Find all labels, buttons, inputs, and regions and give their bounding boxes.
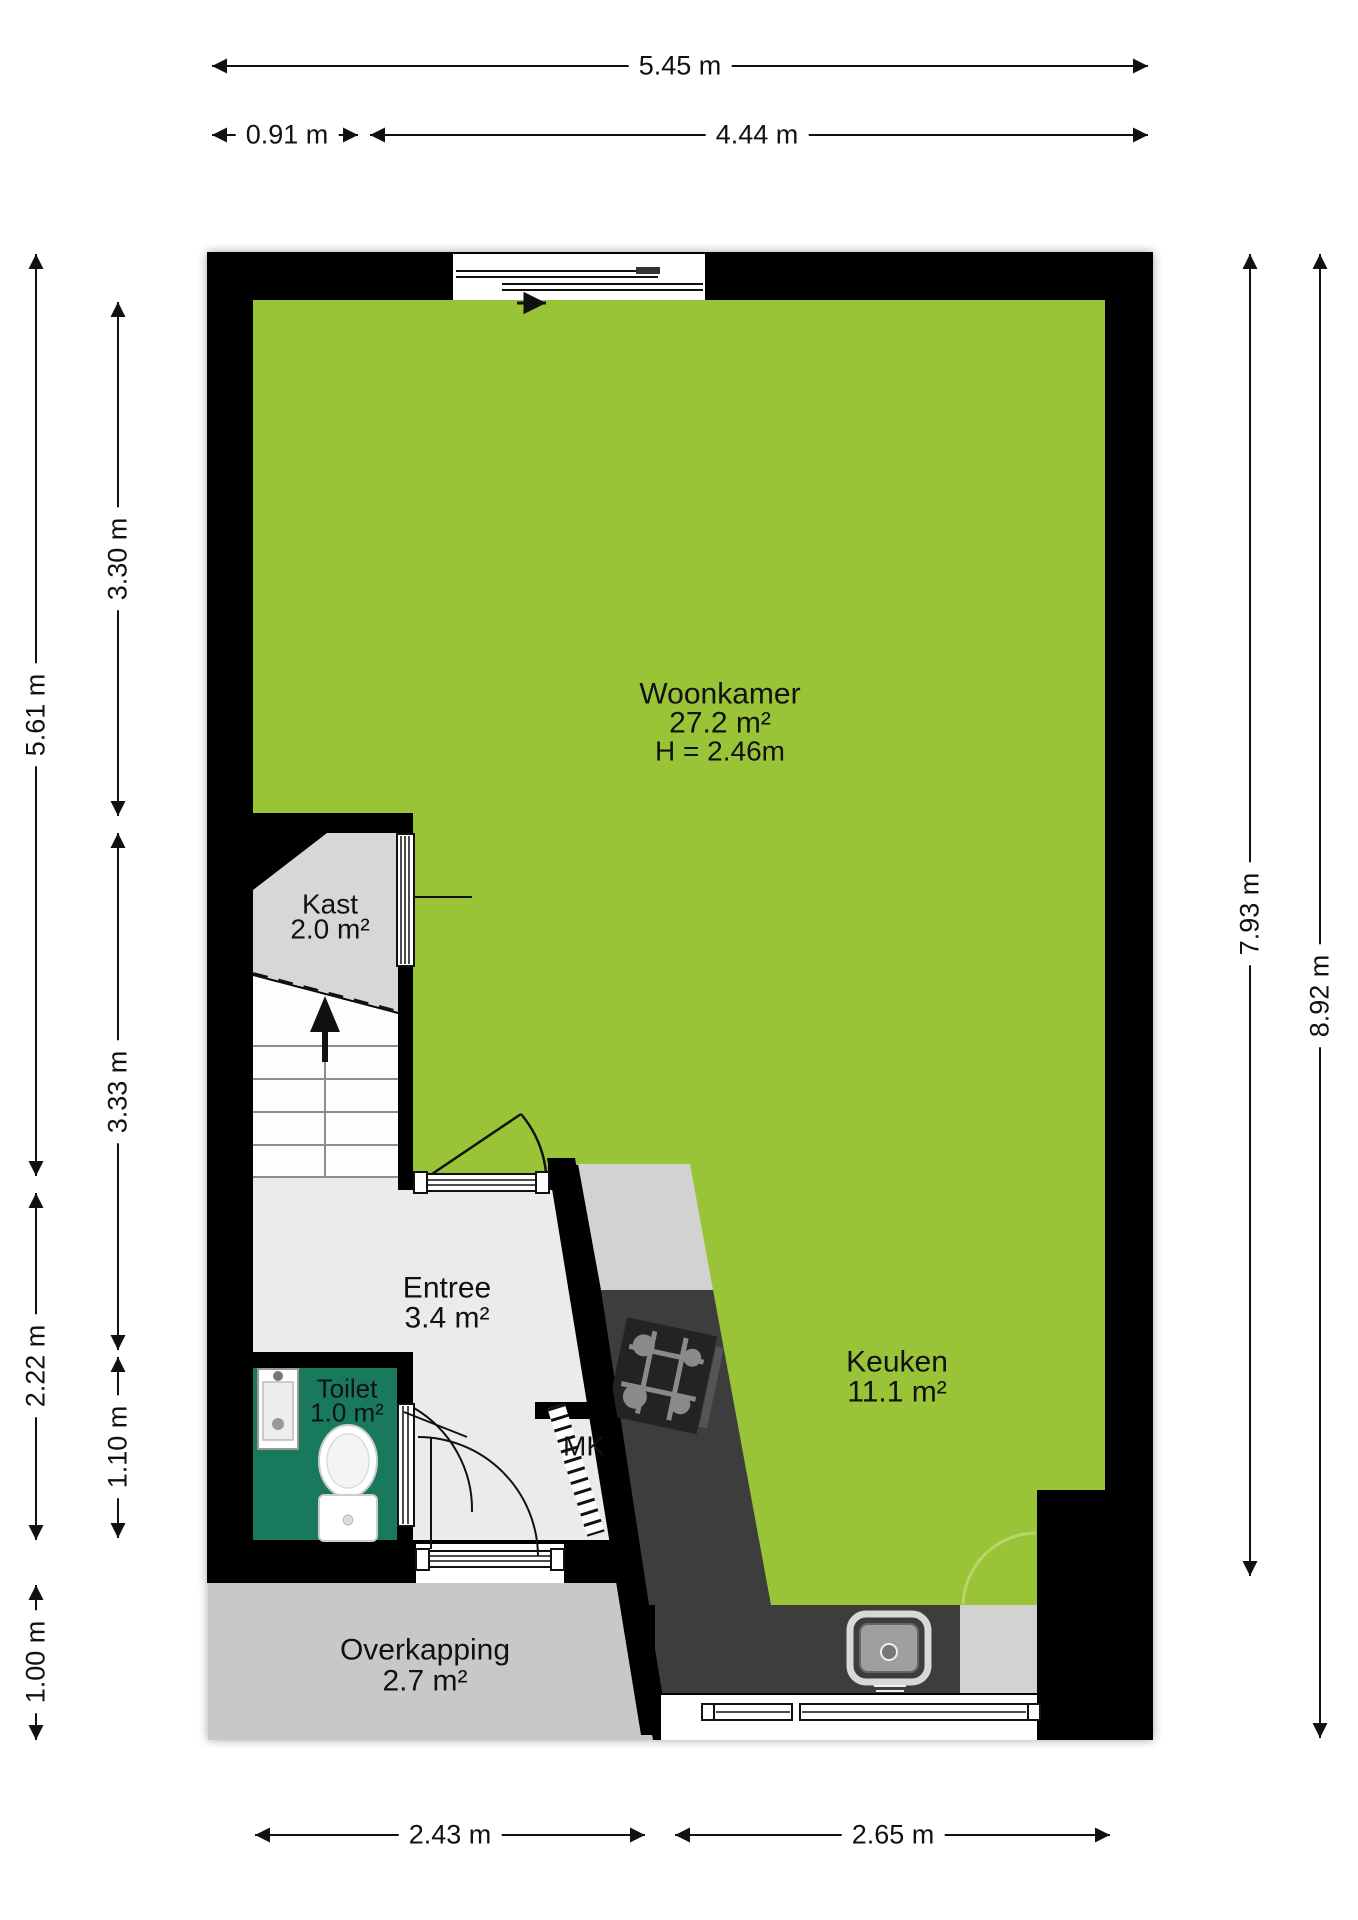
dim-bottom-left-segment: 2.43 m (399, 1819, 502, 1852)
dim-left-outer-middle: 2.22 m (20, 1315, 53, 1418)
floorplan-canvas: Woonkamer 27.2 m² H = 2.46m Kast 2.0 m² … (0, 0, 1358, 1920)
entree-area-label: 3.4 m² (404, 1302, 489, 1334)
dim-left-inner-upper: 3.30 m (102, 508, 135, 611)
kitchen-counter-light-upper (578, 1164, 713, 1290)
wash-basin (258, 1369, 298, 1449)
front-door-cap (416, 1549, 429, 1570)
dim-right-inner: 7.93 m (1234, 863, 1267, 966)
toilet-door-leaf (398, 1404, 414, 1526)
door-sill (416, 1174, 547, 1191)
woonkamer-area-label: 27.2 m² (669, 707, 771, 739)
mk-wall-top (535, 1402, 615, 1419)
overkapping-label: Overkapping (340, 1634, 510, 1666)
gas-hob (606, 1317, 726, 1436)
bottom-window (661, 1695, 1040, 1740)
basin-faucet (273, 1371, 283, 1381)
dim-left-inner-middle: 3.33 m (102, 1041, 135, 1144)
toilet-area-label: 1.0 m² (310, 1399, 384, 1426)
front-door-leaf (420, 1551, 560, 1567)
sink-drain (881, 1644, 897, 1660)
door-sill-cap (536, 1172, 549, 1193)
door-sill-cap (414, 1172, 427, 1193)
overkapping-area-label: 2.7 m² (382, 1665, 467, 1697)
toilet-wall-right-upper (397, 1368, 413, 1404)
toilet-wall-top (253, 1352, 413, 1368)
keuken-label: Keuken (846, 1346, 948, 1378)
front-door-cap (551, 1549, 564, 1570)
kitchen-counter-light-right (960, 1605, 1037, 1693)
dim-top-left-segment: 0.91 m (236, 119, 339, 152)
dim-right-outer: 8.92 m (1304, 945, 1337, 1048)
dim-left-inner-lower: 1.10 m (102, 1396, 135, 1499)
dim-left-outer-lower: 1.00 m (20, 1611, 53, 1714)
building (207, 252, 1153, 1740)
dim-bottom-right-segment: 2.65 m (842, 1819, 945, 1852)
sliding-panel-overlap (636, 267, 660, 274)
basin-bowl (263, 1382, 293, 1440)
woonkamer-label: Woonkamer (639, 678, 800, 710)
floorplan-drawing (0, 0, 1358, 1920)
toilet-seat (327, 1434, 369, 1488)
dim-top-total: 5.45 m (629, 50, 732, 83)
toilet-wall-right-lower (397, 1526, 413, 1540)
toilet-fixture (319, 1425, 377, 1541)
basin-drain (272, 1418, 284, 1430)
window-cap (702, 1704, 714, 1720)
keuken-area-label: 11.1 m² (847, 1376, 946, 1408)
dim-left-outer-upper: 5.61 m (20, 664, 53, 767)
toilet-flush-button (343, 1515, 353, 1525)
window-cap (1028, 1704, 1040, 1720)
dim-top-right-segment: 4.44 m (706, 119, 809, 152)
woonkamer-height-label: H = 2.46m (655, 736, 785, 765)
entree-label: Entree (403, 1272, 491, 1304)
top-window (453, 254, 705, 303)
mk-label: MK (563, 1431, 605, 1460)
kast-area-label: 2.0 m² (290, 914, 369, 943)
